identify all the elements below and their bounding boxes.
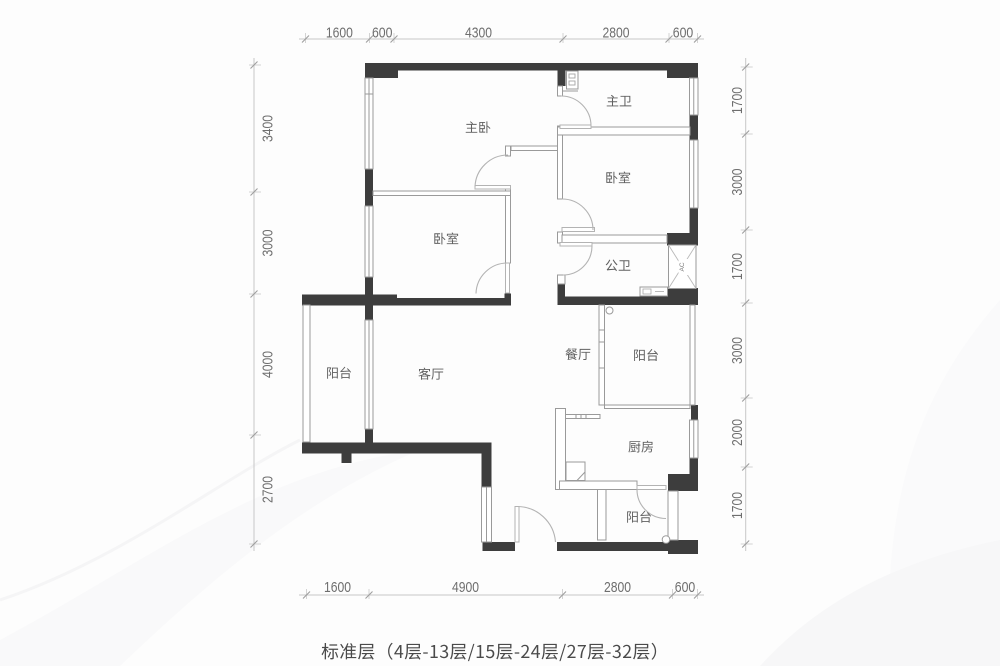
svg-text:1700: 1700 bbox=[729, 492, 746, 519]
svg-text:4300: 4300 bbox=[465, 25, 492, 42]
svg-text:600: 600 bbox=[673, 25, 694, 42]
svg-text:1700: 1700 bbox=[729, 87, 746, 114]
svg-text:AC: AC bbox=[679, 262, 686, 271]
svg-text:3000: 3000 bbox=[729, 169, 746, 196]
svg-text:2700: 2700 bbox=[260, 476, 277, 503]
svg-text:3000: 3000 bbox=[729, 337, 746, 364]
svg-text:1600: 1600 bbox=[326, 25, 353, 42]
svg-text:600: 600 bbox=[372, 25, 393, 42]
svg-text:1700: 1700 bbox=[729, 253, 746, 280]
svg-text:4900: 4900 bbox=[452, 579, 479, 596]
svg-text:2800: 2800 bbox=[603, 25, 630, 42]
svg-text:600: 600 bbox=[675, 579, 696, 596]
svg-text:4000: 4000 bbox=[260, 351, 277, 378]
svg-text:3000: 3000 bbox=[260, 230, 277, 257]
svg-text:2000: 2000 bbox=[729, 419, 746, 446]
svg-text:1600: 1600 bbox=[324, 579, 351, 596]
svg-text:3400: 3400 bbox=[260, 115, 277, 142]
svg-text:2800: 2800 bbox=[604, 579, 631, 596]
